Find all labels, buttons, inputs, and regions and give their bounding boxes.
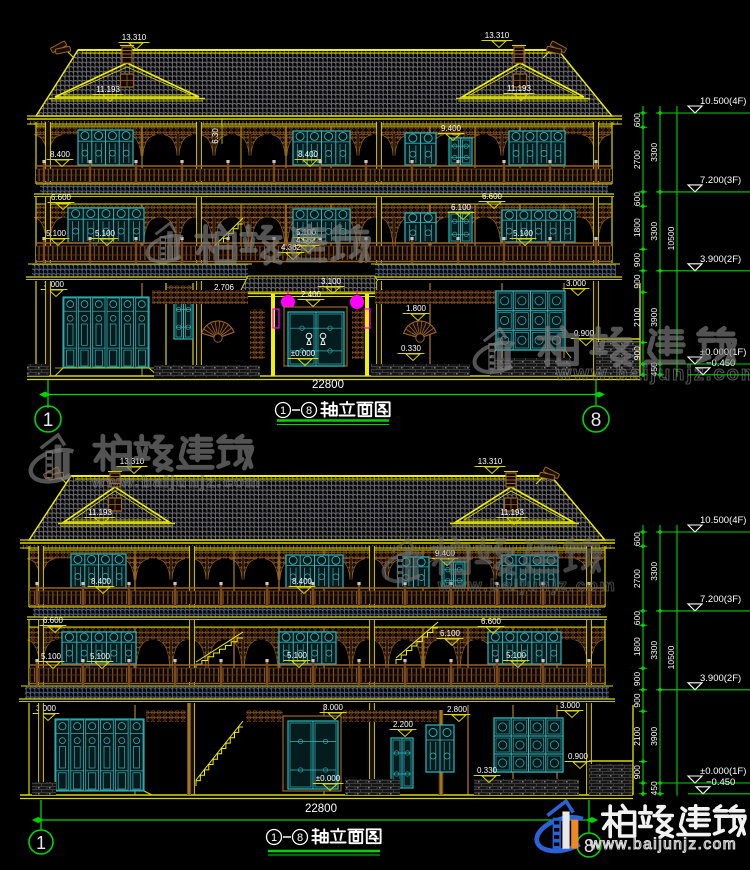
- svg-text:6.30: 6.30: [211, 128, 220, 144]
- svg-text:600: 600: [632, 611, 642, 625]
- svg-text:2.800: 2.800: [447, 705, 468, 714]
- svg-text:13.310: 13.310: [478, 457, 503, 466]
- svg-text:3900: 3900: [649, 308, 659, 327]
- svg-text:www.baijunjz.com: www.baijunjz.com: [91, 474, 262, 491]
- svg-text:3300: 3300: [649, 222, 659, 241]
- svg-text:±0.000(1F): ±0.000(1F): [700, 766, 746, 777]
- svg-text:7.200(3F): 7.200(3F): [700, 175, 741, 186]
- svg-text:6.600: 6.600: [482, 192, 503, 201]
- svg-text:1: 1: [280, 405, 286, 417]
- svg-text:2100: 2100: [632, 308, 642, 327]
- svg-text:11.193: 11.193: [507, 84, 531, 93]
- svg-text:11.193: 11.193: [96, 85, 120, 94]
- svg-text:6.600: 6.600: [481, 617, 502, 626]
- svg-text:22800: 22800: [305, 803, 337, 815]
- svg-text:www.baijunjz.com: www.baijunjz.com: [589, 836, 737, 853]
- svg-text:6.100: 6.100: [440, 629, 461, 638]
- svg-text:8.400: 8.400: [298, 150, 319, 159]
- svg-text:2700: 2700: [632, 569, 642, 588]
- svg-text:8: 8: [591, 410, 602, 431]
- svg-text:900: 900: [632, 672, 642, 686]
- svg-text:22800: 22800: [312, 379, 344, 391]
- svg-text:3.900(2F): 3.900(2F): [700, 254, 741, 265]
- svg-text:8.400: 8.400: [91, 577, 112, 586]
- svg-text:2100: 2100: [632, 727, 642, 746]
- svg-text:1.800: 1.800: [406, 304, 427, 313]
- svg-text:13.310: 13.310: [122, 33, 147, 42]
- svg-text:±0.000: ±0.000: [316, 774, 341, 783]
- svg-text:6.600: 6.600: [43, 616, 64, 625]
- svg-text:6.100: 6.100: [451, 203, 472, 212]
- svg-text:8.400: 8.400: [50, 150, 71, 159]
- svg-text:3.900(2F): 3.900(2F): [700, 673, 741, 684]
- svg-text:3300: 3300: [649, 143, 659, 162]
- svg-text:8: 8: [306, 405, 312, 417]
- svg-text:5.100: 5.100: [95, 229, 116, 238]
- svg-text:900: 900: [632, 274, 642, 288]
- svg-text:6.600: 6.600: [51, 193, 72, 202]
- svg-text:5.100: 5.100: [513, 229, 534, 238]
- svg-text:3900: 3900: [649, 727, 659, 746]
- svg-text:5.100: 5.100: [90, 652, 111, 661]
- svg-text:10.500(4F): 10.500(4F): [700, 96, 746, 107]
- svg-text:0.330: 0.330: [401, 344, 422, 353]
- svg-text:7.200(3F): 7.200(3F): [700, 594, 741, 605]
- svg-text:1800: 1800: [632, 218, 642, 237]
- svg-text:10500: 10500: [666, 645, 676, 669]
- svg-text:1: 1: [271, 832, 277, 844]
- svg-text:8.400: 8.400: [292, 577, 313, 586]
- svg-text:0.330: 0.330: [477, 766, 498, 775]
- svg-text:600: 600: [632, 113, 642, 127]
- svg-text:5.100: 5.100: [41, 652, 62, 661]
- svg-text:3.000: 3.000: [560, 701, 581, 710]
- svg-text:1: 1: [36, 833, 46, 853]
- svg-text:5.100: 5.100: [506, 651, 527, 660]
- svg-text:11.193: 11.193: [88, 508, 112, 517]
- svg-text:8: 8: [297, 832, 303, 844]
- svg-text:10500: 10500: [666, 226, 676, 250]
- svg-text:2700: 2700: [632, 150, 642, 169]
- svg-text:900: 900: [632, 765, 642, 779]
- svg-text:www.baijunjz.com: www.baijunjz.com: [437, 576, 617, 595]
- svg-text:3300: 3300: [649, 562, 659, 581]
- svg-text:900: 900: [632, 253, 642, 267]
- svg-text:1800: 1800: [632, 637, 642, 656]
- svg-text:3300: 3300: [649, 641, 659, 660]
- svg-text:−0.450: −0.450: [706, 777, 735, 788]
- svg-text:10.500(4F): 10.500(4F): [700, 515, 746, 526]
- svg-text:5.100: 5.100: [287, 651, 308, 660]
- svg-text:3.100: 3.100: [321, 277, 342, 286]
- svg-text:2.200: 2.200: [393, 720, 414, 729]
- svg-text:2.400: 2.400: [301, 290, 322, 299]
- svg-text:900: 900: [632, 693, 642, 707]
- svg-text:11.193: 11.193: [500, 508, 524, 517]
- svg-text:600: 600: [632, 192, 642, 206]
- svg-text:0.900: 0.900: [568, 752, 589, 761]
- svg-text:900: 900: [632, 346, 642, 360]
- svg-text:www.baijunjz.com: www.baijunjz.com: [555, 363, 750, 385]
- svg-text:9.400: 9.400: [441, 124, 462, 133]
- svg-text:13.310: 13.310: [485, 31, 510, 40]
- svg-text:±0.000: ±0.000: [291, 349, 316, 358]
- svg-text:3.000: 3.000: [566, 279, 587, 288]
- svg-text:450: 450: [649, 781, 659, 795]
- svg-text:5.100: 5.100: [46, 229, 67, 238]
- svg-text:1: 1: [43, 410, 54, 431]
- svg-text:600: 600: [632, 532, 642, 546]
- svg-text:3.000: 3.000: [323, 703, 344, 712]
